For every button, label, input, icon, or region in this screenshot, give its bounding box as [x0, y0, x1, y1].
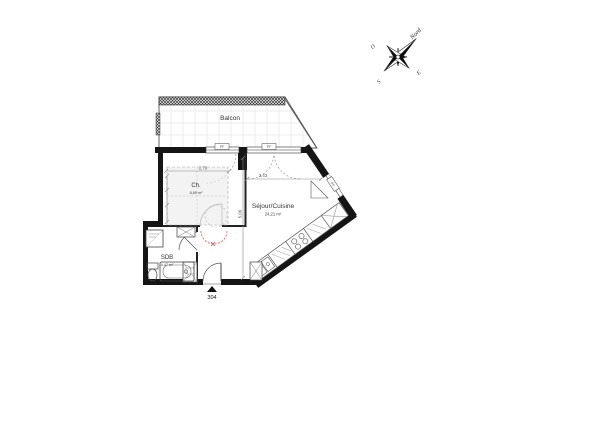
dim-chambre-width: 2,79 — [199, 166, 208, 171]
room-area-sejour: 24,21 m² — [265, 212, 282, 217]
compass-east-label: E — [415, 70, 423, 78]
compass-rose: Nord O S E — [370, 26, 428, 85]
floor-plan-svg: Balcon PF PF — [0, 0, 600, 424]
window-tag-1: PF — [220, 145, 225, 149]
bay-triangle — [311, 181, 328, 198]
hall-markings — [177, 227, 227, 282]
toilet — [147, 263, 158, 281]
balcony-tile-grid — [159, 105, 310, 148]
wall-diagonal-lower — [259, 216, 352, 283]
chambre-furniture — [167, 167, 228, 227]
compass-west-label: O — [370, 44, 377, 51]
radiator-hall — [177, 227, 195, 237]
entrance-arrow-icon — [207, 286, 217, 292]
balcony-railing — [159, 97, 285, 105]
compass-south-label: S — [376, 79, 382, 85]
entrance: 304 — [203, 263, 221, 301]
room-label-sejour: Séjour/Cuisine — [252, 203, 295, 210]
dim-sejour-width: 3,43 — [259, 173, 268, 178]
balcony-left-post — [156, 113, 160, 135]
room-label-chambre: Ch. — [191, 183, 201, 189]
plan-page: Balcon PF PF — [0, 0, 600, 424]
radiator-sejour — [250, 262, 262, 280]
room-label-sdb: SDB — [161, 255, 173, 261]
room-area-chambre: 8,69 m² — [190, 191, 204, 195]
red-swing-arc — [201, 231, 227, 244]
door-entrance — [203, 263, 221, 281]
balcony: Balcon — [156, 97, 317, 148]
washing-machine — [146, 230, 163, 247]
unit-number: 304 — [207, 295, 216, 301]
room-area-sdb: 4,47 m² — [161, 263, 175, 267]
dim-sejour-height: 5,06 — [238, 209, 243, 218]
room-label-balcon: Balcon — [220, 115, 240, 122]
window-tag-2: PF — [267, 145, 272, 149]
window-sejour: PF — [247, 144, 301, 180]
wall-left-upper — [158, 147, 163, 227]
